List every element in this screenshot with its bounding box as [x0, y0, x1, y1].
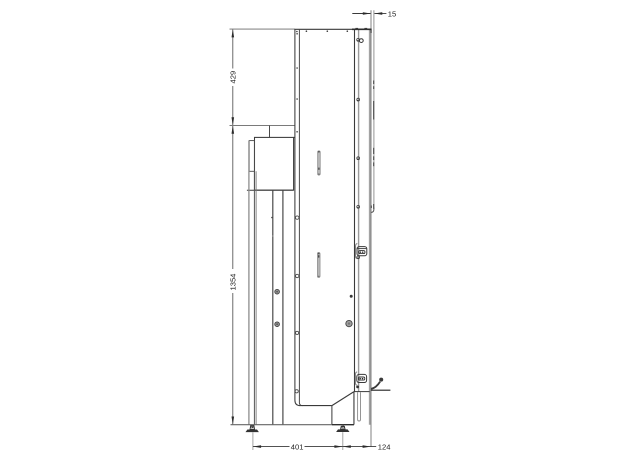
svg-text:1354: 1354: [228, 274, 237, 291]
svg-text:401: 401: [291, 443, 304, 452]
svg-text:124: 124: [378, 443, 391, 452]
svg-text:429: 429: [228, 71, 237, 84]
svg-text:15: 15: [388, 9, 396, 18]
